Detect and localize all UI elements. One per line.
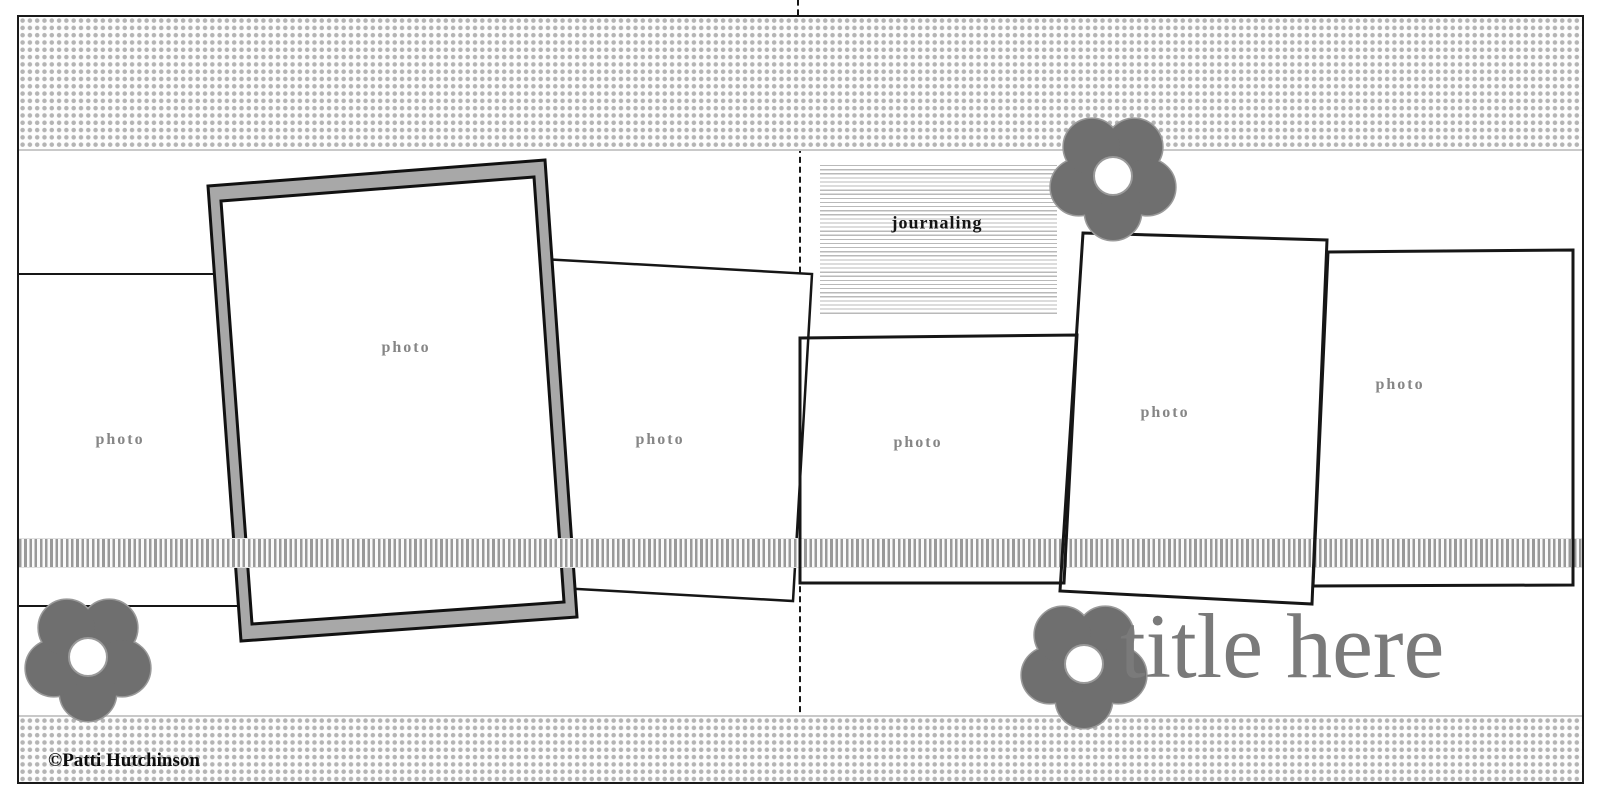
- sketch-canvas: photo photo photo photo photo photo jour…: [17, 15, 1584, 784]
- photo-3-label: photo: [635, 431, 684, 449]
- flower-top-right-icon: [1051, 119, 1175, 240]
- sketch-page: photo photo photo photo photo photo jour…: [0, 0, 1600, 800]
- artist-credit: ©Patti Hutchinson: [48, 750, 200, 772]
- page-fold-tick: [797, 0, 799, 15]
- photo-5-label: photo: [1140, 404, 1189, 422]
- title-placeholder-text: title here: [1120, 600, 1444, 692]
- photo-1-label: photo: [95, 431, 144, 449]
- photo-2-label: photo: [381, 339, 430, 357]
- flower-bottom-left-icon: [26, 600, 150, 721]
- photo-4-label: photo: [893, 434, 942, 452]
- journaling-label: journaling: [891, 213, 982, 234]
- photo-6-label: photo: [1375, 376, 1424, 394]
